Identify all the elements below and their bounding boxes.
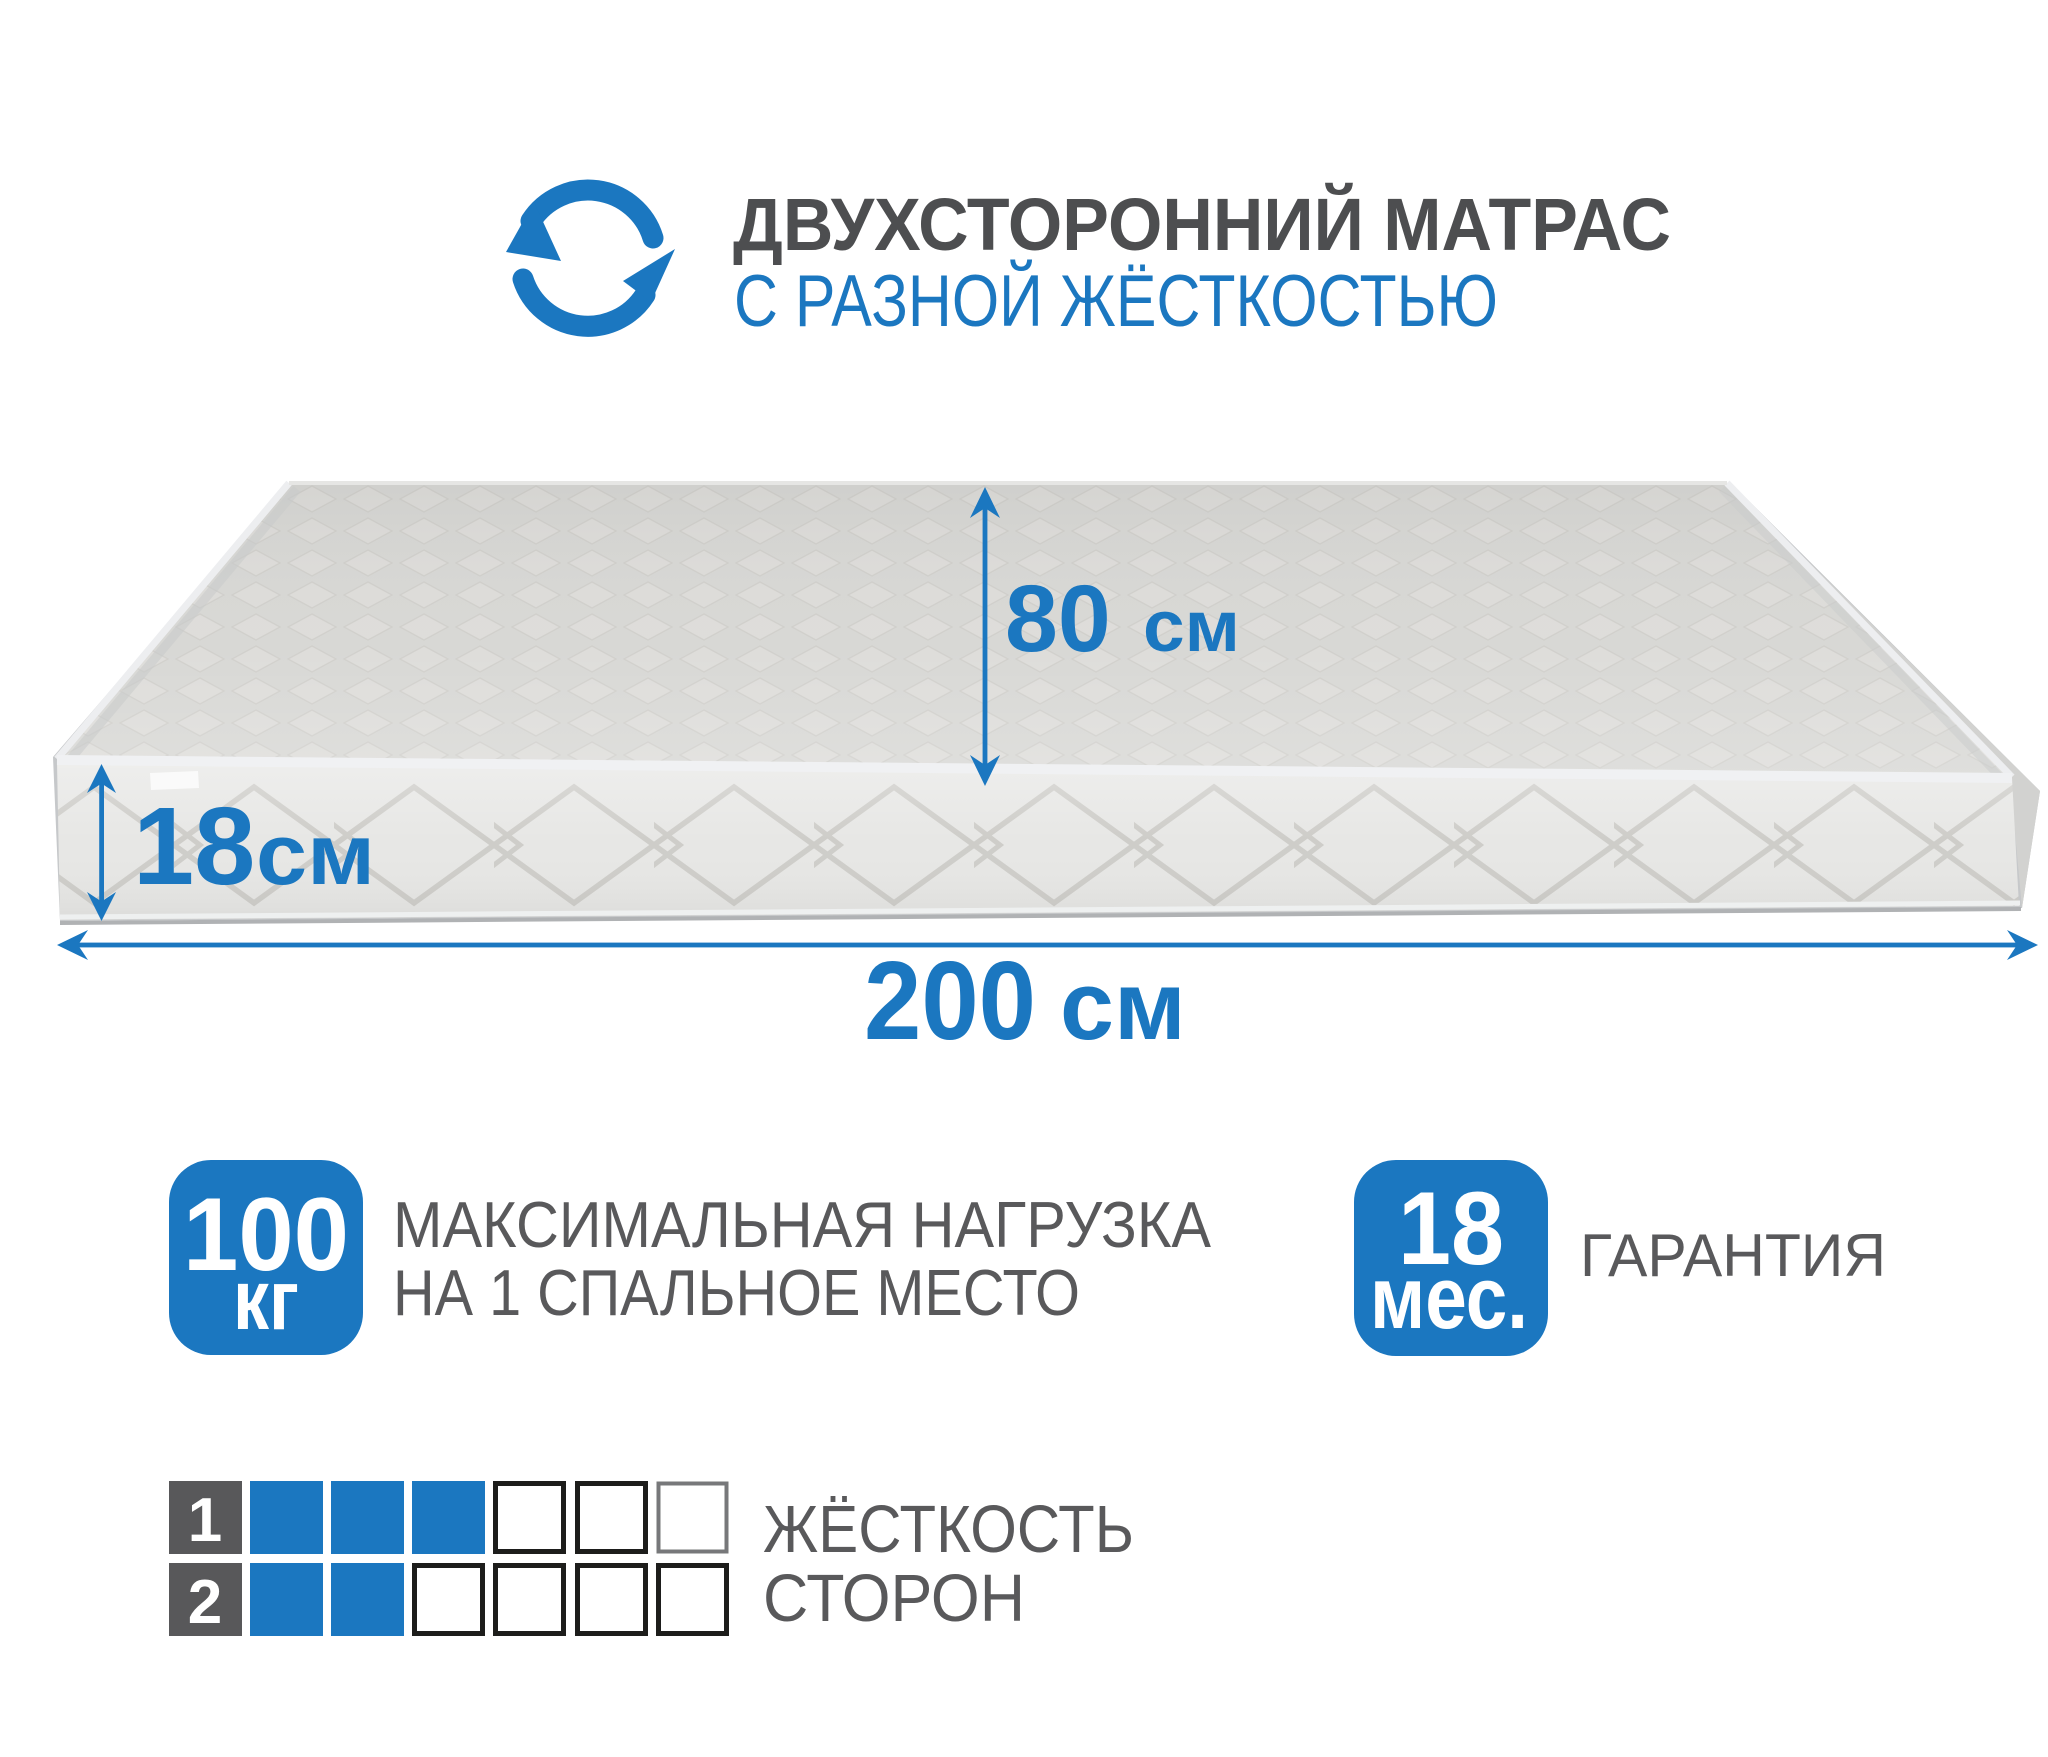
svg-text:кг: кг — [233, 1253, 299, 1348]
svg-text:ГАРАНТИЯ: ГАРАНТИЯ — [1580, 1222, 1886, 1289]
svg-text:МАКСИМАЛЬНАЯ НАГРУЗКА: МАКСИМАЛЬНАЯ НАГРУЗКА — [393, 1188, 1212, 1261]
svg-text:см: см — [1143, 587, 1240, 667]
svg-text:С РАЗНОЙ ЖЁСТКОСТЬЮ: С РАЗНОЙ ЖЁСТКОСТЬЮ — [734, 260, 1498, 342]
svg-text:18: 18 — [133, 785, 255, 908]
svg-text:см: см — [1060, 951, 1186, 1060]
svg-text:2: 2 — [188, 1568, 222, 1637]
svg-text:ЖЁСТКОСТЬ: ЖЁСТКОСТЬ — [763, 1492, 1134, 1567]
svg-text:СТОРОН: СТОРОН — [763, 1561, 1025, 1636]
svg-text:200: 200 — [864, 939, 1036, 1063]
svg-text:1: 1 — [188, 1486, 222, 1555]
svg-text:80: 80 — [1005, 566, 1111, 672]
svg-text:ДВУХСТОРОННИЙ МАТРАС: ДВУХСТОРОННИЙ МАТРАС — [733, 182, 1671, 266]
svg-text:см: см — [256, 807, 375, 903]
svg-text:мес.: мес. — [1370, 1248, 1528, 1347]
svg-text:НА 1 СПАЛЬНОЕ МЕСТО: НА 1 СПАЛЬНОЕ МЕСТО — [393, 1256, 1080, 1329]
